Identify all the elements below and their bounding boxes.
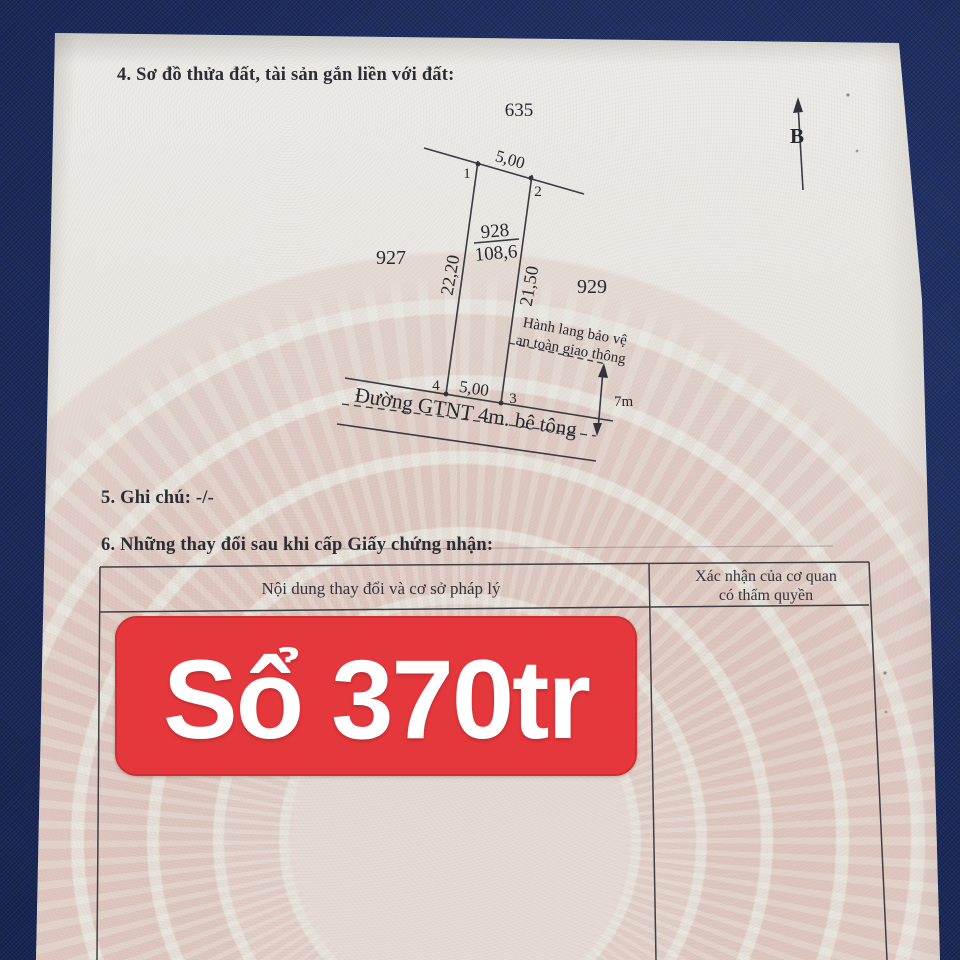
table-border-left bbox=[97, 567, 100, 960]
map-sheet-number: 635 bbox=[505, 100, 534, 121]
paper-speck bbox=[883, 671, 886, 674]
corner-point-1 bbox=[476, 162, 481, 167]
paper-speck bbox=[885, 711, 888, 714]
corner-label-4: 4 bbox=[432, 378, 440, 394]
arrowhead-up-icon bbox=[598, 363, 608, 378]
corner-label-2: 2 bbox=[534, 184, 542, 200]
table-border-right bbox=[869, 562, 887, 960]
paper-speck bbox=[846, 93, 849, 96]
corner-label-1: 1 bbox=[463, 166, 471, 182]
adjacent-parcel-left: 927 bbox=[376, 247, 406, 269]
north-label: B bbox=[790, 124, 804, 148]
edge-left-dimension: 22,20 bbox=[437, 253, 464, 296]
corner-point-2 bbox=[529, 176, 534, 181]
arrowhead-down-icon bbox=[593, 423, 602, 436]
section4-title: 4. Sơ đồ thửa đất, tài sản gắn liền với … bbox=[117, 65, 454, 86]
table-border-top bbox=[100, 562, 869, 567]
parcel-diagram-and-table-lines: 635 B 1 2 3 4 5,00 928 108,6 22,20 21,50… bbox=[0, 0, 960, 960]
corner-label-3: 3 bbox=[509, 391, 517, 407]
corridor-width-label: 7m bbox=[614, 394, 634, 410]
parcel-area: 108,6 bbox=[474, 241, 518, 266]
table-header-bottom bbox=[100, 605, 869, 612]
corridor-width-arrow bbox=[598, 370, 603, 430]
price-badge-label: Sổ 370tr bbox=[163, 629, 589, 764]
section5-note: 5. Ghi chú: -/- bbox=[101, 488, 214, 509]
certificate-photo: 635 B 1 2 3 4 5,00 928 108,6 22,20 21,50… bbox=[0, 0, 960, 960]
table-column-divider bbox=[649, 563, 656, 960]
table-column2-header: Xác nhận của cơ quan có thẩm quyền bbox=[668, 568, 864, 605]
price-badge: Sổ 370tr bbox=[115, 616, 637, 776]
table-column1-header: Nội dung thay đổi và cơ sở pháp lý bbox=[236, 579, 526, 599]
parcel-number: 928 bbox=[480, 220, 510, 243]
adjacent-parcel-right: 929 bbox=[577, 276, 607, 298]
table-column2-header-line1: Xác nhận của cơ quan bbox=[668, 568, 864, 587]
section6-title: 6. Những thay đổi sau khi cấp Giấy chứng… bbox=[101, 535, 493, 556]
paper-speck bbox=[856, 150, 859, 153]
north-arrowhead-icon bbox=[793, 97, 803, 113]
table-column2-header-line2: có thẩm quyền bbox=[668, 587, 864, 606]
